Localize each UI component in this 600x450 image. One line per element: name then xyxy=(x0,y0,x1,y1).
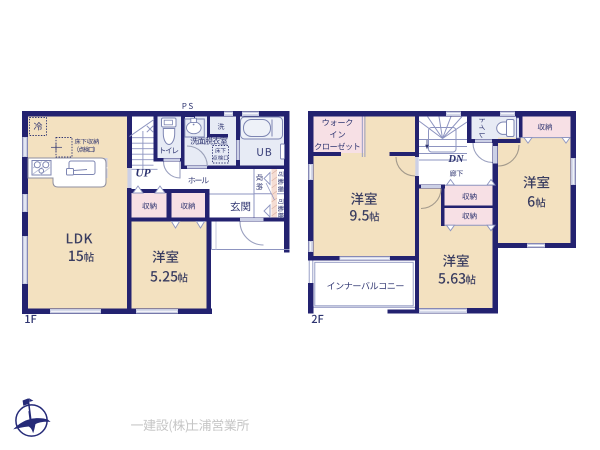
svg-text:DN: DN xyxy=(447,154,464,165)
svg-text:UP: UP xyxy=(135,167,151,179)
